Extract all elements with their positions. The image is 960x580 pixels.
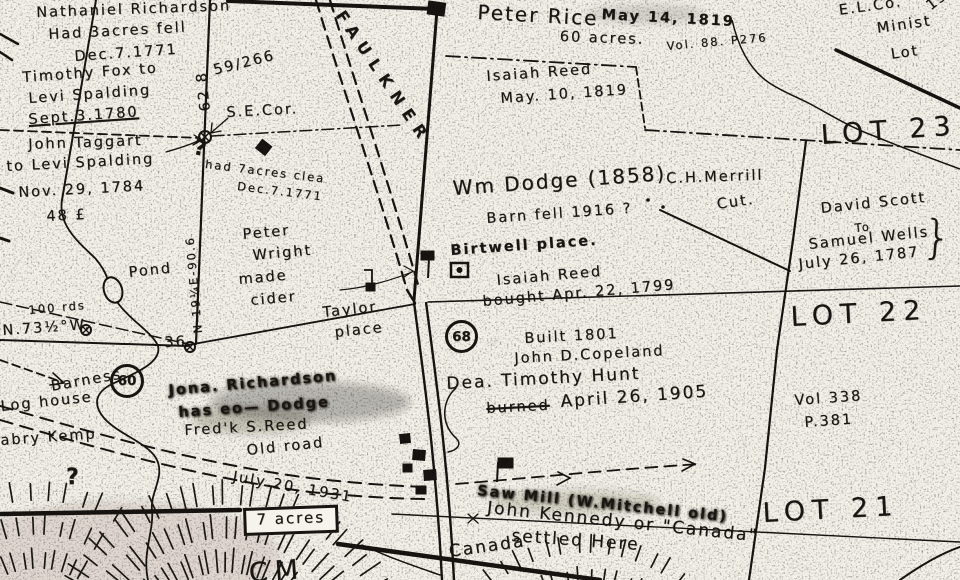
map-label-david-scott: David Scott: [820, 191, 927, 217]
map-label-taylor: Taylor: [322, 300, 378, 321]
map-label-se-cor: S.E.Cor.: [226, 102, 299, 121]
map-label-old-road: Old road: [246, 436, 325, 459]
map-label-burned: burned: [486, 399, 550, 418]
map-label-question-kemp: ?: [66, 466, 81, 489]
map-label-lot-word: Lot: [890, 44, 920, 63]
map-label-pond: Pond: [128, 261, 173, 281]
map-label-vol-338: Vol 338: [794, 389, 863, 409]
map-labels-layer: Nathaniel RichardsonHad 3acres fellDec.7…: [0, 0, 960, 580]
map-label-wells-brace: }: [921, 212, 954, 262]
map-label-isaiah-reed-date: May. 10, 1819: [500, 83, 628, 107]
map-label-lot-23: LOT 23: [820, 112, 958, 150]
map-label-seven-acres: 7 acres: [243, 505, 339, 536]
map-label-lot-21: LOT 21: [762, 493, 900, 528]
map-label-peter-wright-2: Wright: [252, 244, 313, 264]
map-label-had-7-acres-clea: had 7acres clea: [205, 158, 326, 185]
map-label-built-1801: Built 1801: [524, 327, 619, 347]
map-label-el-co: E.L.Co.: [838, 0, 903, 19]
map-label-peter-rice-date: May 14, 1819: [601, 8, 735, 30]
map-marker-house-site-60: 60: [110, 364, 144, 398]
map-label-hundred-rds: 100 rds: [28, 299, 86, 316]
map-label-isaiah-reed-1819: Isaiah Reed: [486, 63, 593, 86]
map-label-nov-29-1784: Nov. 29, 1784: [18, 179, 146, 201]
map-label-john-d-copeland: John D.Copeland: [514, 344, 665, 367]
map-label-april-26-1905: April 26, 1905: [560, 384, 709, 412]
map-label-acres-48: 48 £: [46, 208, 87, 225]
map-label-peter-wright-1: Peter: [242, 224, 291, 243]
map-label-bearing-n19: N-19¼E-90.6: [183, 236, 204, 334]
map-label-p-381: P.381: [804, 413, 854, 432]
map-label-cm-bottom: CM: [248, 556, 306, 580]
map-label-july-20-1931: July 20, 1931: [231, 470, 353, 506]
map-label-bearing-62-8: 62.8: [195, 70, 214, 112]
map-label-bearing-n73: N.73½°W.: [2, 318, 91, 339]
map-label-wm-dodge-1858: Wm Dodge (1858): [452, 163, 667, 199]
map-label-peter-rice: Peter Rice: [477, 2, 599, 29]
map-label-el-co-1st: 1st: [924, 0, 956, 14]
map-label-peter-wright-4: cider: [250, 290, 297, 309]
map-label-peter-wright-3: made: [238, 269, 288, 288]
map-label-log-house: Log house: [0, 390, 93, 415]
historical-map-scan: Nathaniel RichardsonHad 3acres fellDec.7…: [0, 0, 960, 580]
map-label-sixty-acres: 60 acres.: [559, 30, 644, 48]
map-label-marker-36-label: 36: [164, 335, 187, 351]
map-label-vol-88-p276: Vol. 88. P276: [666, 31, 768, 52]
map-label-merrill-cut: Cut.: [716, 193, 755, 213]
map-marker-house-site-68: 68: [445, 320, 478, 353]
map-label-faulkner-road-name: FAULKNER: [332, 8, 434, 148]
map-label-to-levi-spalding: to Levi Spalding: [6, 152, 155, 175]
map-label-fredk-s-reed: Fred'k S.Reed: [184, 417, 309, 439]
map-label-john-taggart: John Taggart: [28, 134, 143, 153]
map-label-had-3-acres-fell: Had 3acres fell: [48, 21, 187, 43]
map-label-minist: Minist: [876, 14, 933, 37]
map-label-ch-merrill: C.H.Merrill: [666, 169, 764, 188]
map-label-nathaniel-richardson: Nathaniel Richardson: [36, 0, 231, 21]
map-label-canada: Canada: [448, 533, 526, 561]
map-label-barn-fell-1916: Barn fell 1916 ?: [486, 202, 633, 227]
map-label-lot-22: LOT 22: [790, 297, 928, 332]
map-label-sept-3-1780: Sept.3.1780: [28, 105, 139, 128]
map-label-taylor-place: place: [334, 321, 384, 341]
map-label-kemp: abry Kemp: [0, 427, 97, 449]
map-label-deed-ref-59-266: 59/266: [212, 49, 277, 79]
map-label-birtwell-place: Birtwell place.: [450, 234, 598, 259]
